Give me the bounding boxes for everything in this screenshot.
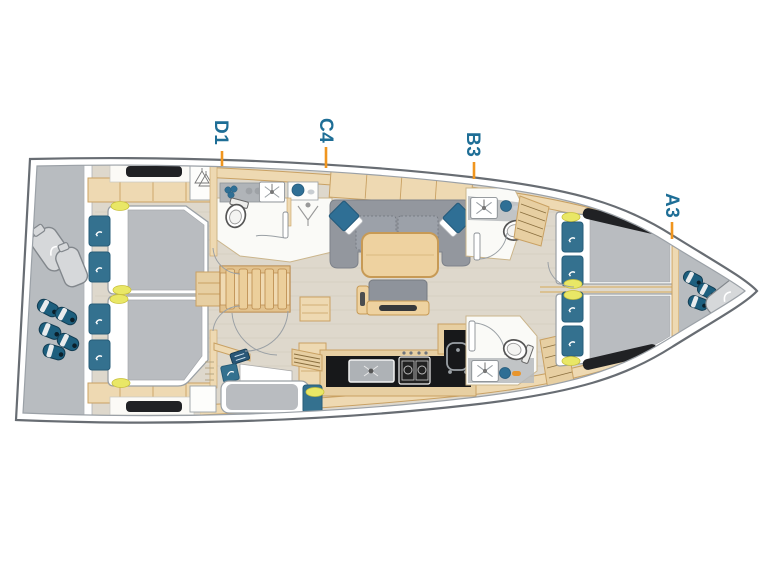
fridge-latch	[456, 348, 460, 352]
reading-light	[112, 379, 130, 388]
reading-light	[111, 202, 129, 211]
berth-duvet	[226, 384, 298, 410]
sink-faucet	[369, 369, 374, 374]
stair-landing	[196, 272, 222, 306]
showerhead-icon	[501, 201, 512, 212]
bed-pillow	[89, 304, 110, 334]
reading-light	[110, 295, 128, 304]
bed-pillow	[89, 340, 110, 370]
reading-light	[564, 291, 582, 300]
bed-pillow	[89, 252, 110, 282]
bench-cushion	[369, 280, 427, 304]
bow-bulkhead	[672, 237, 679, 341]
yacht-floor-plan: D1 C4 B3 A3	[0, 0, 768, 576]
soap-dish	[308, 190, 315, 195]
reading-light	[562, 213, 580, 222]
reading-light	[306, 388, 324, 397]
hull-window	[126, 166, 182, 177]
berth-pillow	[221, 364, 240, 383]
washbasin	[472, 361, 499, 382]
head-door	[283, 212, 288, 238]
counter-knob	[246, 188, 253, 195]
aft-cabin-starboard	[88, 295, 217, 416]
showerhead-icon	[500, 368, 511, 379]
bed-duvet	[128, 300, 202, 380]
cabin-label-group-c4: C4	[315, 118, 336, 168]
aft-head	[217, 182, 332, 262]
reading-light	[562, 357, 580, 366]
reading-light	[113, 286, 131, 295]
cabin-label-c4: C4	[315, 118, 336, 143]
washbasin	[471, 198, 498, 219]
cabin-wall	[210, 330, 217, 388]
cabin-label-d1: D1	[210, 120, 231, 145]
bed-pillow	[562, 222, 583, 252]
hull-window	[126, 401, 182, 412]
bed-pillow	[89, 216, 110, 246]
bed-pillow	[562, 326, 583, 356]
fridge-hinge	[448, 370, 452, 374]
bed-duvet	[128, 210, 204, 290]
cabin-label-b3: B3	[462, 132, 483, 157]
bench-end-slot	[360, 292, 365, 306]
cabin-label-a3: A3	[661, 193, 682, 218]
soap-icon	[512, 371, 521, 376]
yacht-deck-plan-page: D1 C4 B3 A3	[0, 0, 768, 576]
hanging-locker	[190, 386, 216, 412]
companionway	[196, 266, 290, 312]
washbasin	[259, 182, 284, 202]
cabin-wall	[210, 164, 217, 256]
shower-door	[469, 321, 475, 351]
sideboard	[300, 297, 330, 321]
head-door	[474, 233, 480, 260]
cabin-label-group-b3: B3	[462, 132, 483, 179]
bench-slot	[379, 305, 417, 311]
showerhead-icon	[292, 184, 304, 196]
